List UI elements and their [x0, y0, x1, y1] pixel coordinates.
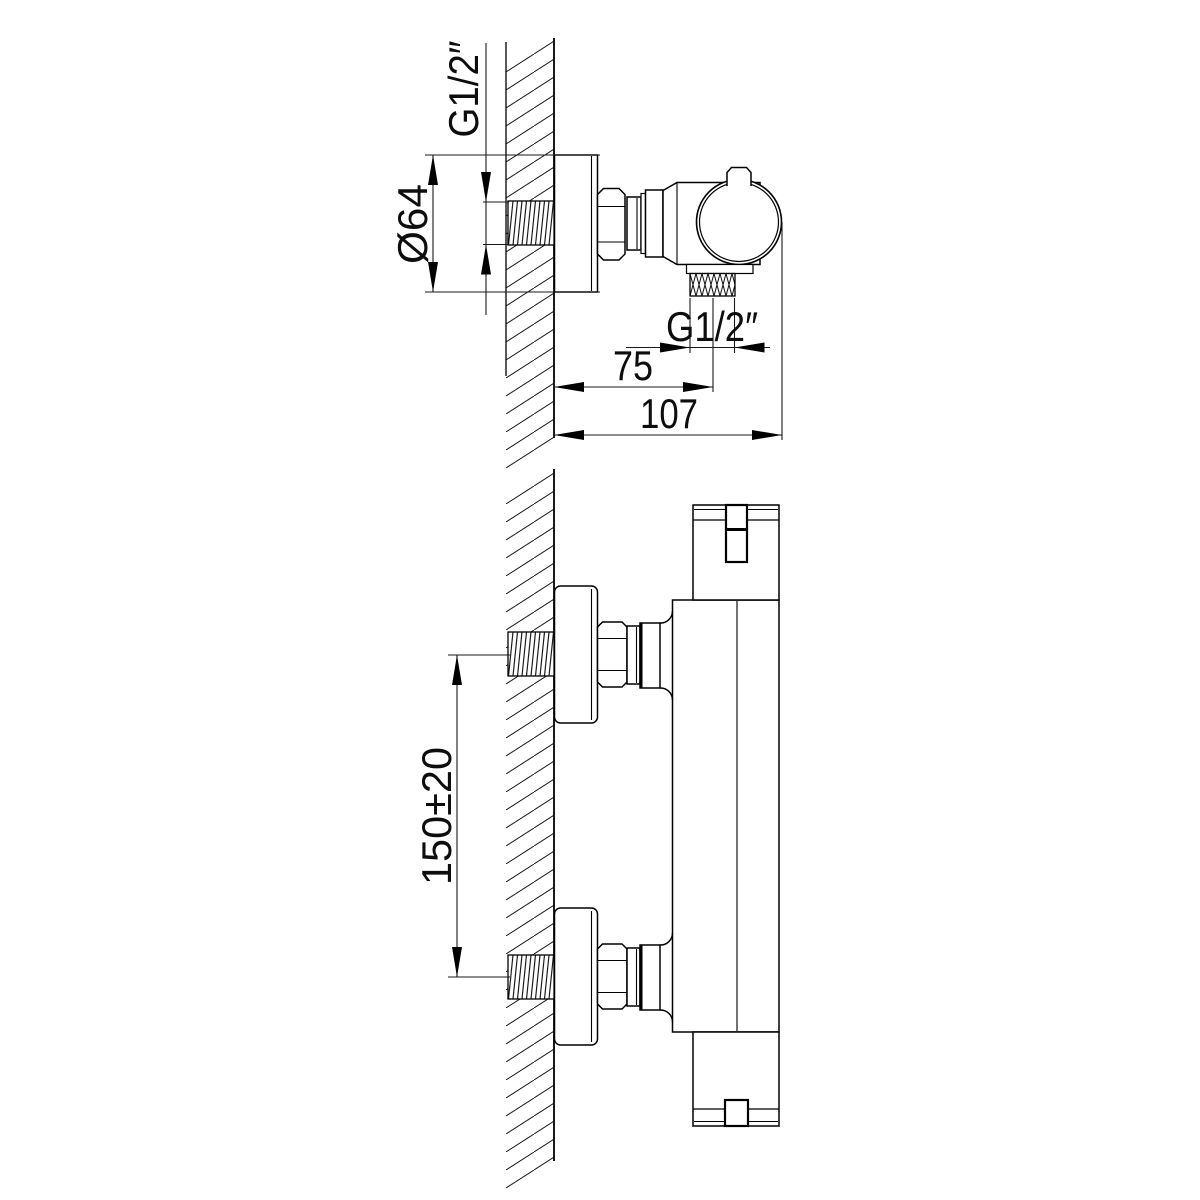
arrowhead — [481, 172, 491, 202]
hex-nut — [598, 944, 628, 1009]
technical-drawing: G1/2″ Ø64 G1/2″ 75 — [0, 0, 1200, 1200]
dim-inlet-thread: G1/2″ — [440, 40, 509, 315]
dim-inlet-spacing: 150±20 — [413, 655, 510, 977]
top-knob-clip — [726, 505, 747, 562]
arrowhead — [452, 655, 462, 685]
wall-hatch — [506, 467, 554, 1192]
washer — [627, 197, 641, 250]
wall-hatch — [506, 36, 554, 469]
flange-diameter-label: Ø64 — [389, 184, 436, 264]
outlet-offset-label: 75 — [613, 342, 653, 389]
valve-bar-body — [673, 505, 780, 1126]
hex-nut — [598, 189, 626, 261]
upper-union — [555, 586, 673, 723]
arrowhead — [452, 947, 462, 977]
top-knob — [693, 505, 779, 600]
washer — [627, 948, 640, 1006]
bottom-knob-clip — [725, 1100, 748, 1126]
fillet — [660, 1010, 673, 1022]
arrowhead — [481, 245, 491, 275]
inlet-thread — [508, 201, 554, 245]
outlet-thread — [690, 274, 735, 297]
overall-depth-label: 107 — [640, 390, 698, 437]
outlet-neck — [687, 265, 754, 274]
top-view: G1/2″ Ø64 G1/2″ 75 — [389, 36, 782, 469]
arrowhead — [428, 155, 438, 185]
drawing-canvas: G1/2″ Ø64 G1/2″ 75 — [0, 0, 1200, 1200]
lower-inlet-thread — [508, 955, 554, 999]
connector-cylinder — [646, 190, 664, 257]
fillet — [660, 933, 673, 945]
connector-cylinder — [640, 623, 660, 688]
bottom-knob — [693, 1032, 779, 1126]
arrowhead — [428, 262, 438, 292]
wall-section-front-view — [506, 467, 554, 1192]
arrowhead — [554, 430, 584, 440]
lower-union — [555, 908, 673, 1045]
inlet-thread-label: G1/2″ — [440, 40, 487, 137]
valve-side-view — [555, 155, 782, 292]
fillet — [660, 611, 673, 623]
inlet-spacing-label: 150±20 — [413, 747, 460, 885]
arrowhead — [554, 382, 584, 392]
washer — [627, 626, 640, 684]
wall-section-top-view — [506, 36, 554, 469]
connector-cylinder — [640, 945, 660, 1010]
outlet-thread-label: G1/2″ — [666, 303, 758, 350]
hex-nut — [598, 622, 628, 687]
temperature-knob-face — [697, 180, 782, 265]
bar-housing — [673, 600, 780, 1032]
arrowhead — [752, 430, 782, 440]
knob-lever-fill — [727, 168, 751, 187]
upper-inlet-thread — [508, 632, 554, 676]
front-view: 150±20 — [413, 467, 779, 1192]
fillet — [660, 688, 673, 700]
